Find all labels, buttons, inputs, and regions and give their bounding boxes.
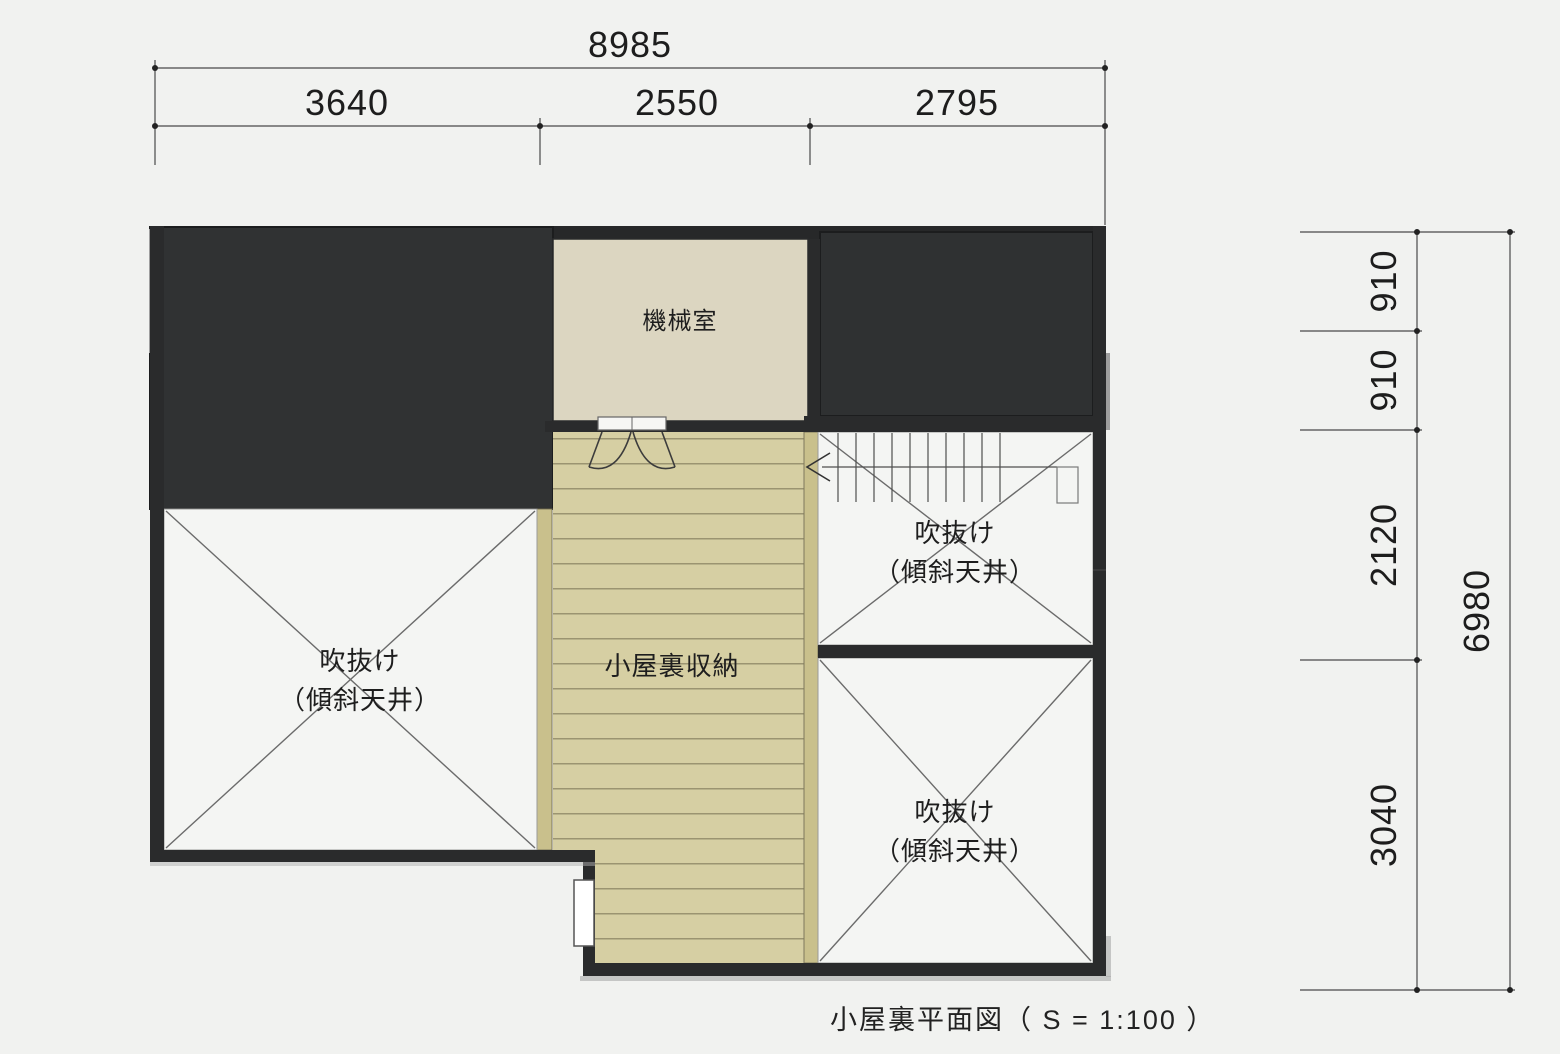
dim-right-segment: 910 bbox=[1363, 249, 1404, 312]
right-wall-outer-sliver bbox=[1106, 353, 1110, 430]
machine-room-south-wall bbox=[545, 421, 818, 432]
dim-top-total: 8985 bbox=[588, 24, 672, 65]
dim-right-total: 6980 bbox=[1456, 569, 1497, 653]
attic-storage-floor-upper bbox=[553, 432, 804, 852]
shadow-bottom bbox=[580, 976, 1111, 981]
void-label-left: 吹抜け bbox=[319, 646, 400, 676]
wall-between-voids bbox=[818, 645, 1093, 658]
attic-storage-label: 小屋裏収納 bbox=[604, 651, 739, 681]
roof-area-right bbox=[820, 232, 1093, 416]
outer-right-wall bbox=[1093, 226, 1106, 976]
dim-right-segment: 3040 bbox=[1363, 783, 1404, 867]
sloped-ceiling-label-upper-right: （傾斜天井） bbox=[874, 557, 1036, 587]
floor-plan-drawing: 8985 3640 2550 2795 910 910 2120 3040 69… bbox=[0, 0, 1560, 1054]
dim-top-segment: 3640 bbox=[305, 82, 389, 123]
storage-knee-wall-right bbox=[804, 432, 818, 963]
dim-top-segment: 2550 bbox=[635, 82, 719, 123]
void-label-lower-right: 吹抜け bbox=[914, 797, 995, 827]
attic-floor-plan-page: { "title": "小屋裏平面図", "caption": "小屋裏平面図（… bbox=[0, 0, 1560, 1054]
dim-top-segment: 2795 bbox=[915, 82, 999, 123]
outer-bottom-wall bbox=[583, 963, 1106, 976]
roof-area-left bbox=[150, 227, 553, 509]
storage-side-door bbox=[574, 880, 594, 946]
plan-caption: 小屋裏平面図（ S = 1:100 ） bbox=[830, 1005, 1215, 1035]
dim-right-segment: 2120 bbox=[1363, 503, 1404, 587]
wall-below-right-roof bbox=[804, 416, 1093, 432]
sloped-ceiling-label-lower-right: （傾斜天井） bbox=[874, 836, 1036, 866]
shadow-right bbox=[1106, 936, 1111, 977]
shadow-left-room bbox=[150, 862, 595, 866]
outer-left-wall bbox=[150, 226, 164, 862]
attic-storage-floor-lower bbox=[595, 852, 804, 963]
storage-knee-wall-left bbox=[537, 509, 552, 850]
machine-room-east-wall bbox=[808, 239, 820, 421]
stair-landing-box bbox=[1057, 467, 1078, 503]
sloped-ceiling-label-left: （傾斜天井） bbox=[279, 685, 441, 715]
dim-right-segment: 910 bbox=[1363, 348, 1404, 411]
void-label-upper-right: 吹抜け bbox=[914, 518, 995, 548]
machine-room-label: 機械室 bbox=[643, 308, 718, 335]
left-room-south-wall bbox=[150, 850, 595, 862]
